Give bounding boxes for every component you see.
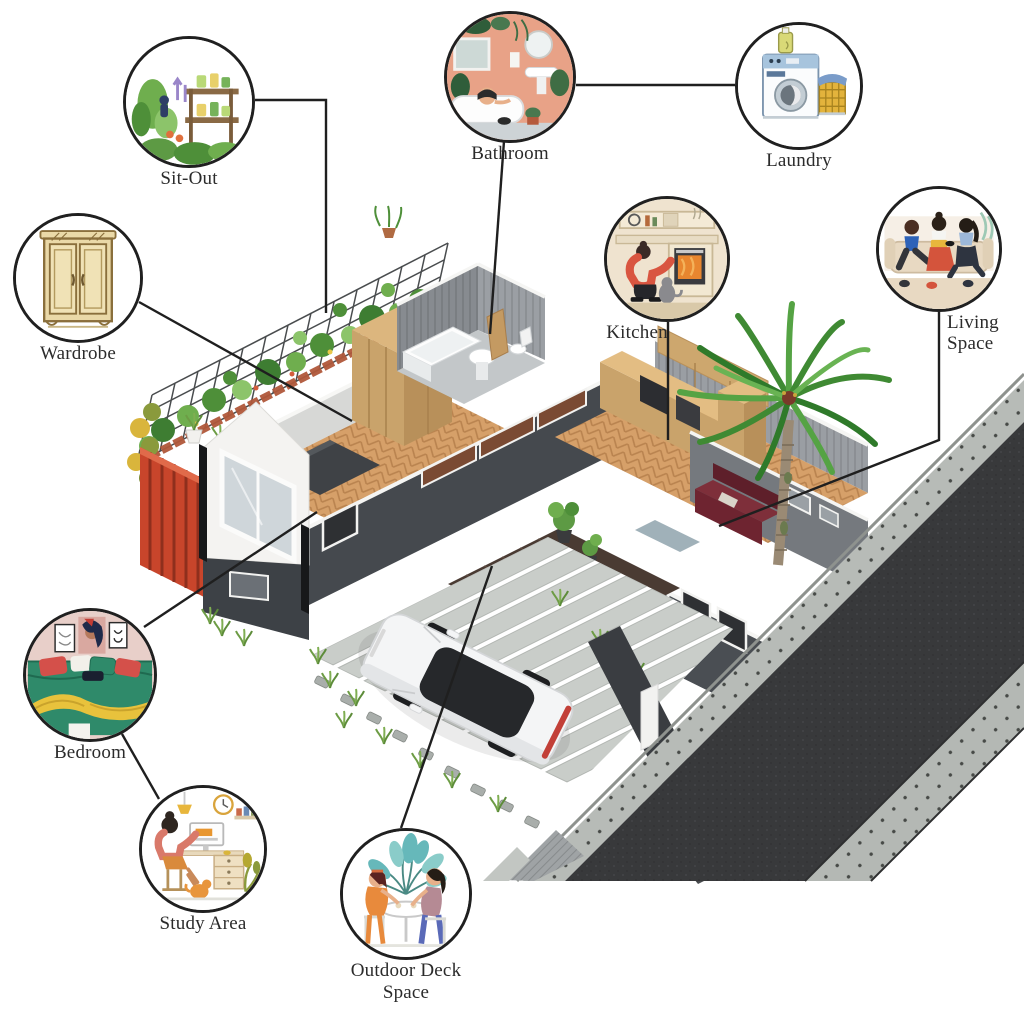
living-space-illustration — [879, 189, 999, 309]
washing-machine-icon — [738, 25, 860, 147]
callout-wardrobe: Wardrobe — [13, 213, 143, 343]
study-thumbnail — [139, 785, 267, 913]
kitchen-illustration — [607, 199, 727, 319]
callout-living: Living Space — [876, 186, 1002, 312]
wardrobe-thumbnail — [13, 213, 143, 343]
rug — [635, 520, 700, 552]
study-area-illustration — [142, 788, 264, 910]
diagram-canvas: Sit-Out Wardrobe — [0, 0, 1024, 1024]
hanging-pot — [375, 206, 401, 238]
sit-out-illustration — [126, 39, 252, 165]
bathroom-thumbnail — [444, 11, 576, 143]
deck-thumbnail — [340, 828, 472, 960]
callout-label: Study Area — [160, 913, 247, 935]
kitchen-thumbnail — [604, 196, 730, 322]
callout-study: Study Area — [139, 785, 267, 913]
callout-laundry: Laundry — [735, 22, 863, 150]
callout-label: Wardrobe — [40, 343, 116, 365]
callout-deck: Outdoor Deck Space — [340, 828, 472, 960]
callout-label: Outdoor Deck Space — [326, 960, 486, 1004]
callout-label: Laundry — [766, 150, 832, 172]
sit-out-thumbnail — [123, 36, 255, 168]
small-window — [230, 572, 268, 600]
living-thumbnail — [876, 186, 1002, 312]
callout-label: Bedroom — [54, 742, 126, 764]
callout-label: Sit-Out — [160, 168, 217, 190]
callout-sitout: Sit-Out — [123, 36, 255, 168]
bedroom-illustration — [26, 611, 154, 739]
laundry-thumbnail — [735, 22, 863, 150]
callout-label: Kitchen — [606, 322, 668, 344]
bathroom-illustration — [447, 14, 573, 140]
bedroom-thumbnail — [23, 608, 157, 742]
gate-pillar — [641, 684, 658, 750]
leader-sitout — [255, 100, 326, 313]
outdoor-deck-illustration — [343, 831, 469, 957]
callout-label: Living Space — [947, 312, 1019, 354]
callout-kitchen: Kitchen — [604, 196, 730, 322]
callout-bathroom: Bathroom — [444, 11, 576, 143]
wardrobe-icon — [16, 216, 140, 340]
callout-label: Bathroom — [471, 143, 549, 165]
callout-bedroom: Bedroom — [23, 608, 157, 742]
